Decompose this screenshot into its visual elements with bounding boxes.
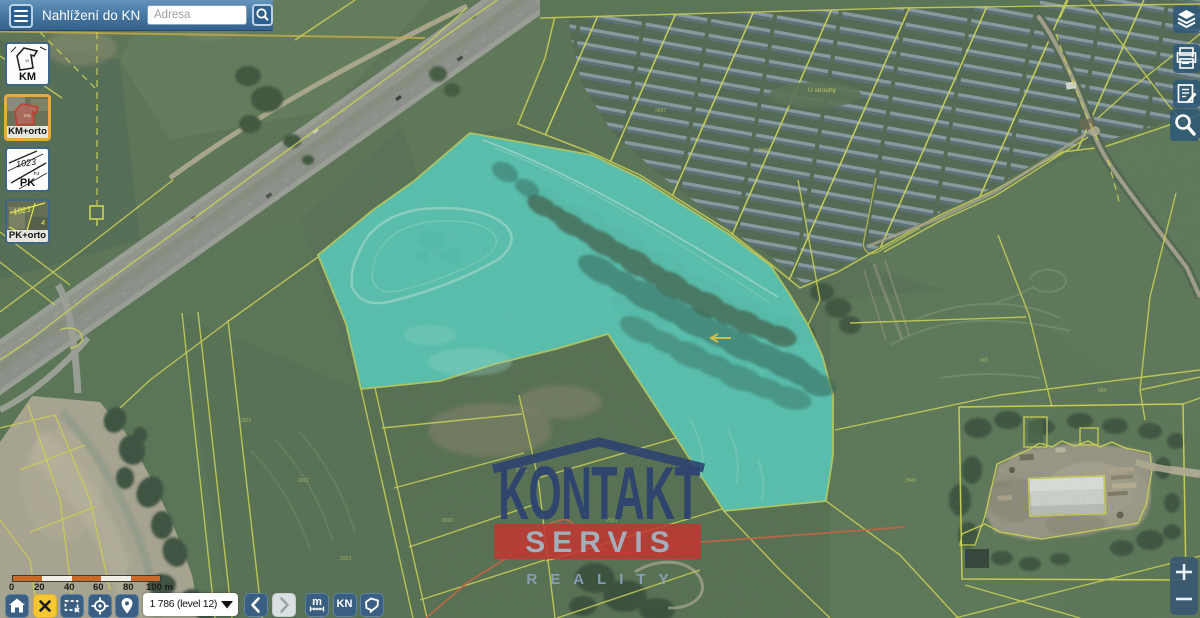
svg-text:m: m xyxy=(312,596,322,608)
svg-text:36: 36 xyxy=(25,58,30,63)
svg-text:4: 4 xyxy=(41,220,45,227)
svg-text:1023: 1023 xyxy=(15,157,36,170)
svg-text:SERVIS: SERVIS xyxy=(525,526,677,559)
svg-text:376: 376 xyxy=(24,113,31,118)
svg-text:REALITY: REALITY xyxy=(526,571,681,588)
svg-text:KONTAKT: KONTAKT xyxy=(498,451,700,535)
